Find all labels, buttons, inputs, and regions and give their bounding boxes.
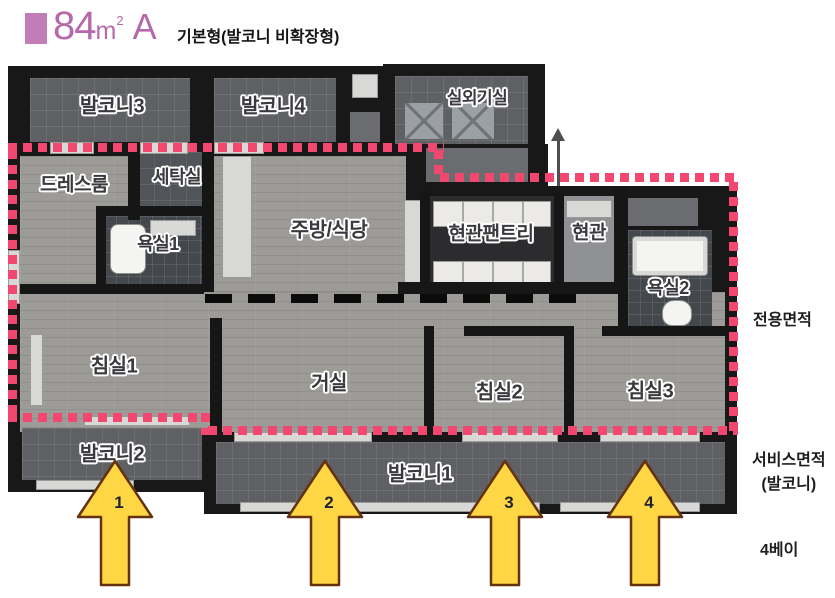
dashed-divider-line xyxy=(205,294,590,303)
wall-pantry-bottom xyxy=(398,282,626,294)
wall-bath1-left xyxy=(96,206,106,292)
room-label-bedroom3: 침실3 xyxy=(627,375,673,404)
bay-arrow-1-shape xyxy=(78,461,152,585)
bay-arrow-2-shape xyxy=(288,461,362,585)
bedroom1-wardrobe xyxy=(30,334,43,406)
wall-pantry-entrance xyxy=(554,192,564,286)
entrance-step xyxy=(566,200,612,218)
room-label-living: 거실 xyxy=(311,367,347,396)
bay-arrow-2-number: 2 xyxy=(324,493,333,512)
room-label-dressroom: 드레스룸 xyxy=(40,170,108,197)
bay-arrow-1-number: 1 xyxy=(114,493,123,512)
annotation-service-area: 서비스면적 (발코니) xyxy=(752,446,826,494)
page-title: 84m2A xyxy=(53,4,157,49)
kitchen-counter xyxy=(222,156,252,278)
wall-pantry-left xyxy=(420,190,430,292)
bay-arrow-3-shape xyxy=(468,461,542,585)
room-label-entrance: 현관 xyxy=(572,218,606,245)
bay-arrow-4: 4 xyxy=(603,458,687,588)
wall-living-bedroom2 xyxy=(424,326,434,432)
entrance-closet xyxy=(628,198,698,226)
wall-bath2-left xyxy=(618,226,628,332)
wall-bedroom2-top xyxy=(464,326,564,336)
annotation-service-area-line2: (발코니) xyxy=(752,470,826,494)
exclusive-boundary-right xyxy=(729,182,738,432)
plan-subtitle: 기본형(발코니 비확장형) xyxy=(177,23,339,47)
bath2-tub xyxy=(632,236,708,276)
room-label-outdoor-unit: 실외기실 xyxy=(447,84,508,109)
bay-arrow-4-shape xyxy=(608,461,682,585)
room-label-bath1: 욕실1 xyxy=(137,230,179,256)
annotation-bay-count: 4베이 xyxy=(760,536,798,560)
wall-bedroom1-living xyxy=(210,318,222,432)
bay-arrow-3-number: 3 xyxy=(504,493,513,512)
annotation-service-area-line1: 서비스면적 xyxy=(752,446,826,470)
exclusive-boundary-top-right xyxy=(440,173,738,182)
wall-bedroom2-bedroom3 xyxy=(564,326,574,432)
room-label-bath2: 욕실2 xyxy=(647,274,689,300)
floorplan-page: 84m2A 기본형(발코니 비확장형) xyxy=(0,0,835,598)
exclusive-boundary-bottom-left xyxy=(8,413,204,422)
bay-arrow-4-number: 4 xyxy=(644,493,654,512)
room-label-bedroom1: 침실1 xyxy=(91,350,137,379)
room-label-balcony1: 발코니1 xyxy=(388,458,452,487)
plan-type: A xyxy=(133,6,157,47)
exclusive-boundary-top-left xyxy=(8,143,444,152)
ac-unit-1 xyxy=(405,103,443,139)
title-square-bullet xyxy=(25,13,47,44)
bay-arrow-2: 2 xyxy=(283,458,367,588)
bay-arrow-1: 1 xyxy=(73,458,157,588)
duct-shaft-lower xyxy=(350,112,380,142)
entrance-direction-arrow-line xyxy=(557,140,560,186)
area-unit: m xyxy=(96,17,117,45)
wall-bedroom3-top xyxy=(602,326,737,336)
room-label-laundry: 세탁실 xyxy=(153,163,201,189)
exclusive-boundary-bottom-right xyxy=(208,426,738,435)
duct-shaft xyxy=(352,74,378,98)
bay-arrow-3: 3 xyxy=(463,458,547,588)
wall-bedroom1-top xyxy=(20,284,204,294)
wall-bath1-top xyxy=(96,206,204,216)
wall-kitchen-left xyxy=(202,150,214,292)
room-label-kitchen: 주방/식당 xyxy=(291,214,368,243)
annotation-exclusive-area: 전용면적 xyxy=(753,306,812,330)
room-label-bedroom2: 침실2 xyxy=(476,376,522,405)
area-number: 84 xyxy=(53,4,96,48)
room-label-balcony4: 발코니4 xyxy=(241,90,305,119)
area-superscript: 2 xyxy=(116,13,123,28)
exclusive-boundary-left xyxy=(8,150,17,416)
room-label-balcony3: 발코니3 xyxy=(80,90,144,119)
bath2-toilet xyxy=(662,300,692,326)
room-label-pantry: 현관팬트리 xyxy=(449,219,534,246)
